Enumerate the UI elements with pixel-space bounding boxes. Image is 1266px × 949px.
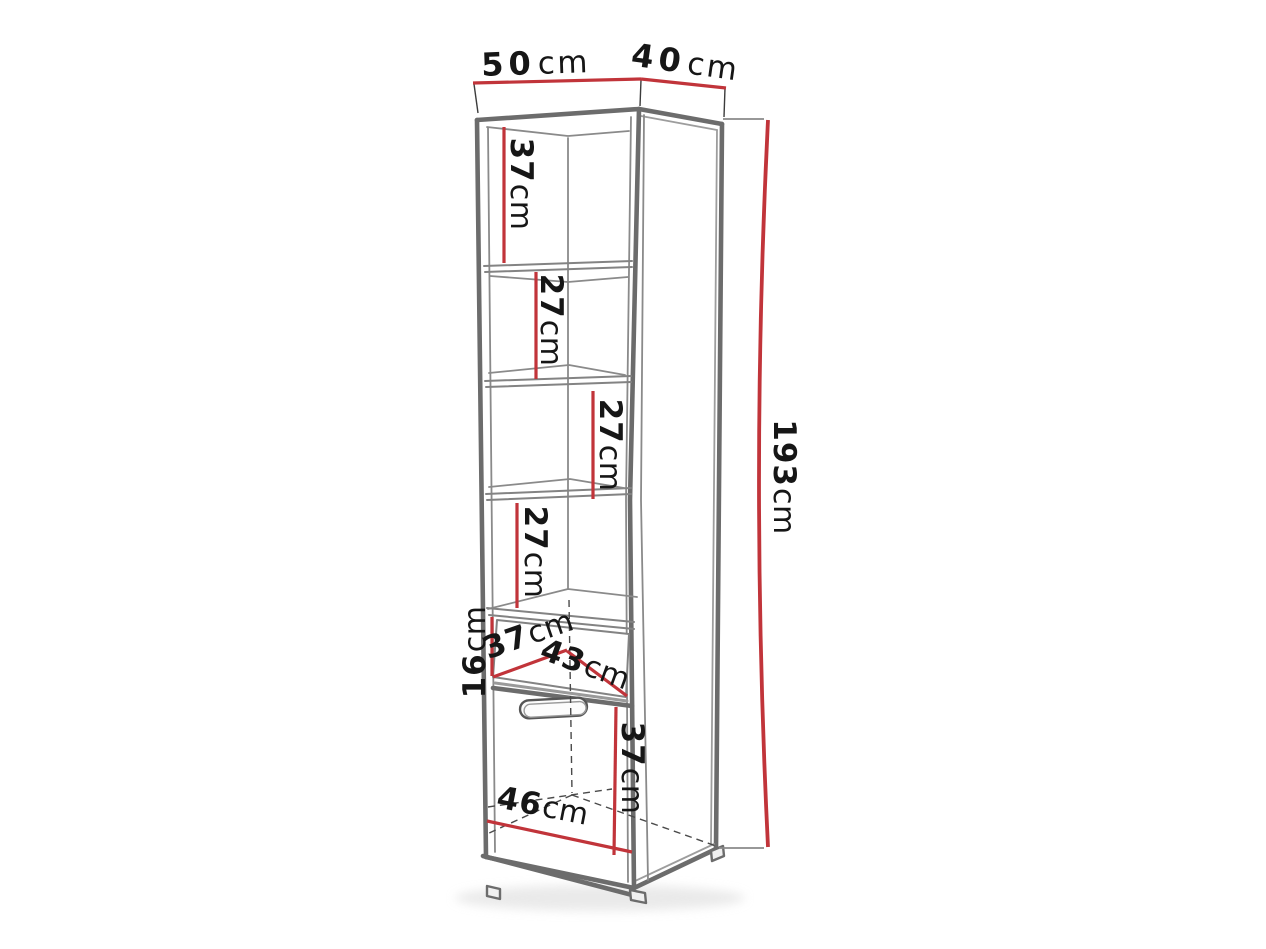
dim-label-section-2: 27cm — [533, 274, 569, 367]
dim-label-section-4: 27cm — [517, 506, 553, 599]
dim-label-door-height: 37cm — [614, 722, 650, 815]
foot-front-right — [630, 890, 646, 903]
dim-label-section-3: 27cm — [592, 399, 628, 492]
foot-front-left — [487, 886, 500, 899]
furniture-dimension-diagram: 50cm 40cm 193cm 37cm 27cm 27cm 27cm 16cm… — [0, 0, 1266, 949]
cabinet-drawing: 50cm 40cm 193cm 37cm 27cm 27cm 27cm 16cm… — [0, 0, 1266, 949]
dim-label-width-top: 50cm — [481, 42, 591, 84]
dim-label-section-1: 37cm — [503, 138, 539, 231]
dim-label-height-right: 193cm — [766, 419, 802, 534]
door-handle — [520, 697, 588, 718]
